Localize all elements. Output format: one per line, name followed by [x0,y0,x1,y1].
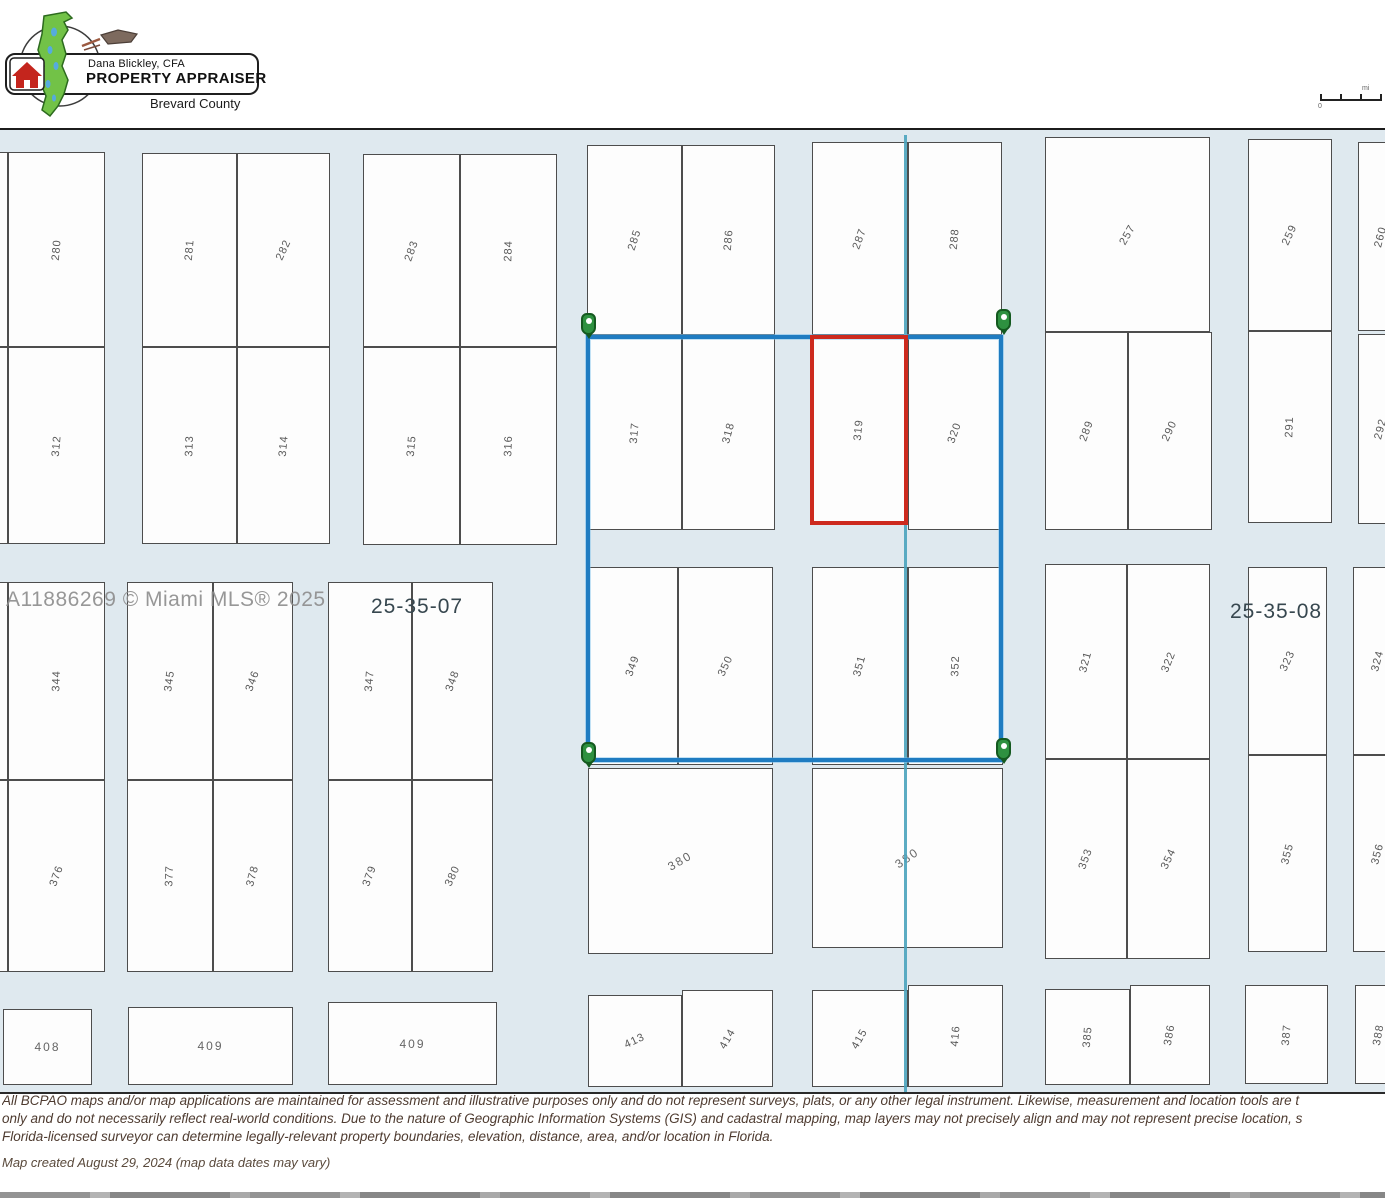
corner-pin-icon [581,742,596,764]
disclaimer-line-3: Florida-licensed surveyor can determine … [2,1129,1385,1144]
parcel-number: 323 [1278,649,1298,673]
parcel-number: 408 [34,1040,60,1054]
parcel-312: 312 [8,347,105,544]
parcel-313: 313 [142,347,237,544]
parcel-322: 322 [1127,564,1210,759]
parcel-380: 380 [412,780,493,972]
mls-watermark: A11886269 © Miami MLS® 2025 [6,588,326,612]
map-scale-bar: 0 mi [1316,80,1385,112]
parcel-number: 292 [1372,417,1385,441]
parcel-number: 415 [849,1026,870,1050]
parcel-409: 409 [328,1002,497,1085]
parcel-415: 415 [812,990,908,1087]
corner-pin-icon [996,738,1011,760]
parcel-387: 387 [1245,985,1328,1084]
section-township-range-label: 25-35-07 [371,595,463,619]
parcel-282: 282 [237,153,330,347]
parcel-314: 314 [237,347,330,544]
parcel-number: 321 [1077,650,1094,674]
parcel-416: 416 [908,985,1003,1087]
parcel-number: 388 [1371,1023,1385,1046]
parcel-281: 281 [142,153,237,347]
parcel-number: 380 [443,864,463,888]
parcel-number: 285 [625,228,643,252]
parcel-number: 345 [163,670,178,693]
property-appraiser-logo: Dana Blickley, CFA PROPERTY APPRAISER Br… [4,6,274,124]
parcel-number: 386 [1162,1023,1178,1046]
parcel-323: 323 [1248,567,1327,755]
parcel-315: 315 [363,347,460,545]
parcel-number: 322 [1159,649,1178,673]
parcel-edge-sliver [0,152,8,347]
parcel-number: 347 [363,670,377,692]
parcel-number: 281 [183,239,197,261]
parcel-number: 313 [183,435,196,457]
parcel-260: 260 [1358,142,1385,331]
parcel-number: 290 [1160,419,1180,443]
parcel-number: 260 [1372,225,1385,249]
parcel-377: 377 [127,780,213,972]
parcel-number: 287 [851,226,870,250]
highlighted-parcel-outline [810,335,908,525]
scale-bar-line [1320,99,1382,101]
parcel-number: 355 [1279,842,1296,866]
parcel-number: 414 [717,1026,738,1050]
parcel-288: 288 [908,142,1002,335]
parcel-286: 286 [682,145,775,335]
parcel-376: 376 [8,780,105,972]
parcel-number: 380 [666,848,696,873]
parcel-number: 348 [443,669,462,693]
parcel-285: 285 [587,145,682,335]
parcel-number: 314 [277,434,291,456]
parcel-316: 316 [460,347,557,545]
parcel-408: 408 [3,1009,92,1085]
selection-boundary-box [586,335,1003,762]
parcel-257: 257 [1045,137,1210,332]
map-created-date: Map created August 29, 2024 (map data da… [2,1155,330,1170]
plat-map-canvas: 2803123443764082812823133143453463773784… [0,128,1385,1094]
scale-tick [1360,94,1362,101]
parcel-number: 413 [623,1031,647,1051]
parcel-number: 324 [1369,649,1385,673]
parcel-388: 388 [1355,985,1385,1084]
parcel-edge-sliver [0,780,8,972]
parcel-284: 284 [460,154,557,347]
parcel-number: 257 [1117,222,1138,246]
parcel-number: 354 [1159,847,1179,871]
disclaimer-line-1: All BCPAO maps and/or map applications a… [2,1093,1385,1108]
parcel-number: 409 [197,1039,223,1053]
parcel-number: 377 [164,865,177,887]
parcel-number: 378 [244,864,261,888]
parcel-number: 282 [274,238,294,262]
parcel-321: 321 [1045,564,1127,759]
parcel-280: 280 [8,152,105,347]
parcel-number: 344 [50,670,63,692]
appraiser-title: PROPERTY APPRAISER [86,70,267,87]
appraiser-name: Dana Blickley, CFA [88,58,185,70]
parcel-259: 259 [1248,139,1332,331]
parcel-324: 324 [1353,567,1385,755]
parcel-292: 292 [1358,334,1385,524]
parcel-289: 289 [1045,332,1128,530]
parcel-number: 409 [399,1037,425,1051]
county-name: Brevard County [150,96,240,111]
scale-tick [1320,94,1322,101]
parcel-number: 376 [47,864,66,888]
parcel-number: 280 [50,238,64,260]
parcel-354: 354 [1127,759,1210,959]
parcel-number: 286 [722,229,736,251]
scale-zero-label: 0 [1318,103,1322,110]
parcel-385: 385 [1045,989,1130,1085]
parcel-number: 387 [1280,1023,1294,1045]
parcel-number: 259 [1280,223,1300,247]
parcel-283: 283 [363,154,460,347]
corner-pin-icon [996,309,1011,331]
scanned-plat-map-page: Dana Blickley, CFA PROPERTY APPRAISER Br… [0,0,1385,1200]
parcel-number: 315 [405,435,419,457]
parcel-number: 283 [402,238,421,262]
parcel-number: 291 [1284,416,1297,438]
parcel-number: 380 [893,845,922,871]
parcel-290: 290 [1128,332,1212,530]
parcel-number: 284 [502,240,515,262]
parcel-number: 416 [949,1025,963,1047]
parcel-number: 312 [50,434,64,456]
scale-tick [1380,94,1382,101]
parcel-291: 291 [1248,331,1332,523]
scale-unit-label: mi [1362,85,1369,92]
parcel-287: 287 [812,142,908,335]
parcel-number: 379 [361,864,380,888]
parcel-number: 356 [1369,842,1385,866]
parcel-414: 414 [682,990,773,1087]
scale-tick [1340,94,1342,101]
disclaimer-line-2: only and do not necessarily reflect real… [2,1111,1385,1126]
parcel-380: 380 [812,768,1003,948]
parcel-number: 385 [1081,1026,1095,1048]
parcel-379: 379 [328,780,412,972]
parcel-380: 380 [588,768,773,954]
parcel-386: 386 [1130,985,1210,1085]
parcel-edge-sliver [0,347,8,544]
parcel-number: 346 [244,669,263,693]
parcel-413: 413 [588,995,682,1087]
parcel-356: 356 [1353,755,1385,952]
section-township-range-label: 25-35-08 [1230,600,1322,624]
parcel-409: 409 [128,1007,293,1085]
parcel-number: 289 [1077,419,1096,443]
parcel-353: 353 [1045,759,1127,959]
parcel-378: 378 [213,780,293,972]
parcel-number: 288 [948,227,962,249]
scan-artifact-strip [0,1192,1385,1198]
parcel-355: 355 [1248,755,1327,952]
parcel-number: 353 [1077,847,1096,871]
corner-pin-icon [581,313,596,335]
parcel-number: 316 [502,435,515,457]
